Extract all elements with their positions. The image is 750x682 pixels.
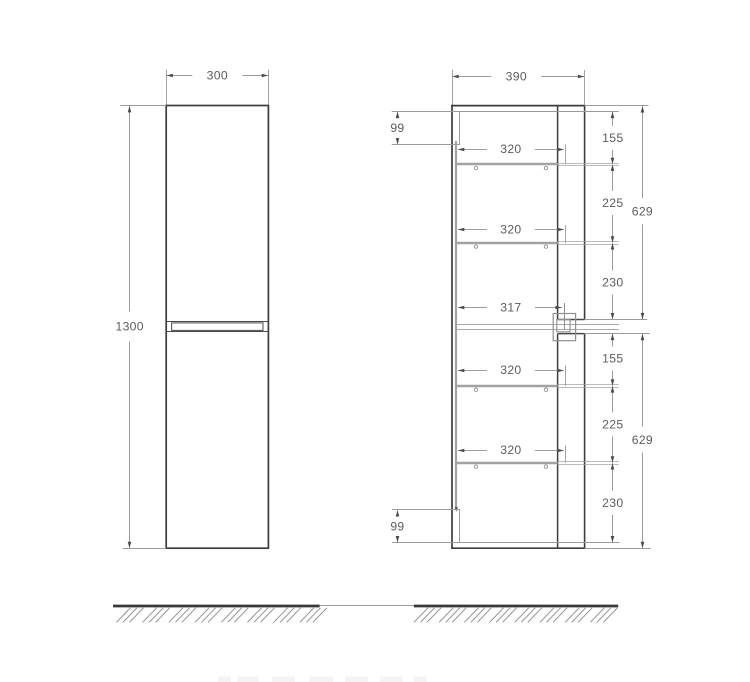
svg-text:390: 390 — [506, 69, 527, 83]
svg-text:320: 320 — [500, 142, 521, 156]
svg-text:155: 155 — [602, 352, 623, 366]
svg-text:300: 300 — [207, 69, 228, 83]
svg-text:225: 225 — [602, 196, 623, 210]
svg-text:320: 320 — [500, 223, 521, 237]
svg-text:320: 320 — [500, 363, 521, 377]
svg-text:155: 155 — [602, 131, 623, 145]
svg-text:230: 230 — [602, 276, 623, 290]
svg-text:1300: 1300 — [116, 320, 144, 334]
svg-text:629: 629 — [632, 433, 653, 447]
svg-text:317: 317 — [500, 300, 521, 314]
svg-text:629: 629 — [632, 204, 653, 218]
svg-text:320: 320 — [500, 443, 521, 457]
svg-text:225: 225 — [602, 417, 623, 431]
svg-text:99: 99 — [390, 121, 404, 135]
svg-text:230: 230 — [602, 496, 623, 510]
svg-text:99: 99 — [390, 519, 404, 533]
